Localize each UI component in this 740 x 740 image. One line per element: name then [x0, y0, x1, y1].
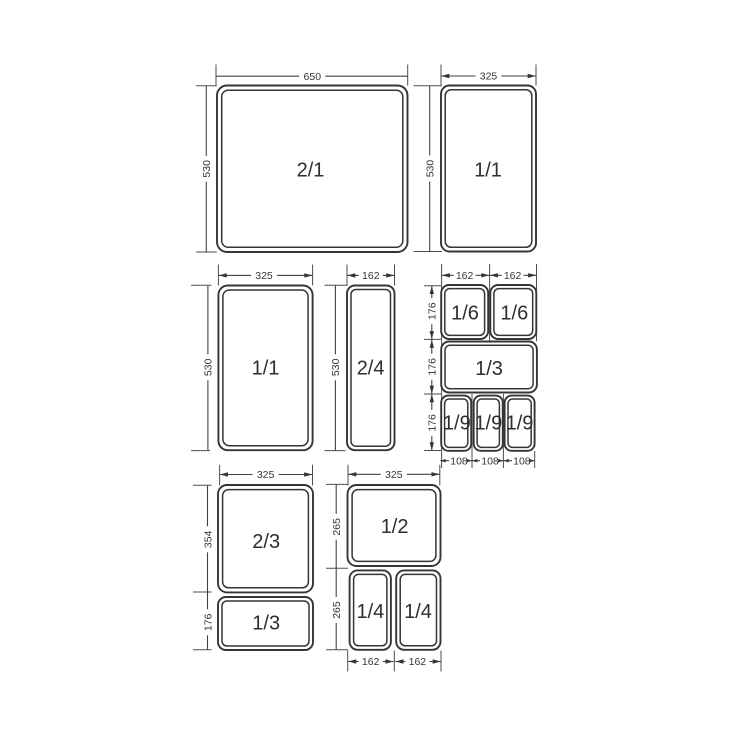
svg-text:530: 530 [424, 160, 436, 178]
svg-text:162: 162 [409, 656, 427, 668]
svg-text:265: 265 [331, 518, 343, 536]
svg-text:1/3: 1/3 [252, 613, 280, 635]
svg-text:162: 162 [362, 656, 380, 668]
svg-text:108: 108 [450, 455, 468, 467]
svg-text:1/4: 1/4 [404, 601, 432, 623]
svg-text:1/3: 1/3 [475, 358, 503, 380]
svg-text:108: 108 [481, 455, 499, 467]
svg-text:325: 325 [257, 469, 275, 481]
svg-text:1/6: 1/6 [451, 302, 479, 324]
svg-text:325: 325 [255, 270, 273, 282]
svg-text:530: 530 [201, 160, 213, 178]
svg-text:162: 162 [456, 270, 474, 282]
svg-text:1/6: 1/6 [500, 302, 528, 324]
svg-text:176: 176 [427, 358, 439, 376]
svg-text:2/4: 2/4 [357, 358, 385, 380]
svg-text:1/4: 1/4 [356, 601, 384, 623]
svg-text:2/1: 2/1 [297, 160, 325, 182]
svg-text:650: 650 [304, 71, 322, 83]
svg-text:1/2: 1/2 [381, 516, 409, 538]
svg-text:176: 176 [426, 302, 438, 320]
svg-text:325: 325 [480, 71, 498, 83]
svg-text:530: 530 [330, 358, 342, 376]
svg-text:1/1: 1/1 [474, 160, 502, 182]
svg-text:176: 176 [427, 414, 439, 432]
svg-text:1/1: 1/1 [252, 358, 280, 380]
svg-text:325: 325 [385, 469, 403, 481]
svg-text:162: 162 [362, 270, 380, 282]
svg-text:108: 108 [513, 455, 531, 467]
svg-text:354: 354 [202, 530, 214, 548]
svg-text:176: 176 [202, 613, 214, 631]
svg-text:2/3: 2/3 [252, 531, 280, 553]
svg-text:1/9: 1/9 [506, 412, 534, 434]
svg-text:162: 162 [504, 270, 522, 282]
svg-text:530: 530 [203, 358, 215, 376]
svg-text:1/9: 1/9 [443, 412, 471, 434]
svg-text:265: 265 [331, 601, 343, 619]
svg-text:1/9: 1/9 [474, 412, 502, 434]
